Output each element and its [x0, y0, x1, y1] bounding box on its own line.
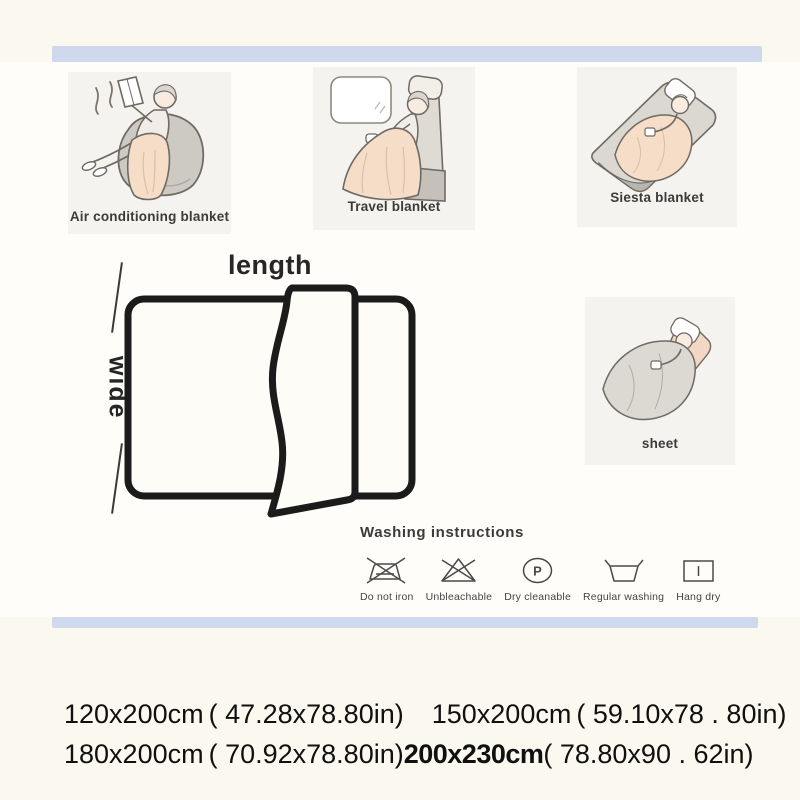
- sheet-cover: [603, 341, 695, 419]
- hand: [651, 361, 661, 369]
- size-option-150x200: 150x200cm( 59.10x78 . 80in): [432, 699, 787, 729]
- wash-item-regular-washing: Regular washing: [583, 553, 664, 603]
- sheet-illustration: [587, 303, 733, 435]
- scene-label: Siesta blanket: [577, 190, 737, 205]
- travel-blanket-illustration: [315, 71, 473, 203]
- blanket-rectangle: [128, 299, 412, 496]
- blanket: [128, 133, 170, 199]
- wash-label: Regular washing: [583, 591, 664, 603]
- size-line-2: 180x200cm( 70.92x78.80in)200x230cm( 78.8…: [64, 734, 800, 774]
- hang-dry-icon: [677, 553, 719, 588]
- wash-item-dry-cleanable: P Dry cleanable: [504, 553, 571, 603]
- do-not-iron-icon: [364, 553, 409, 588]
- hand: [645, 128, 655, 136]
- head: [672, 97, 689, 114]
- scene-label: Travel blanket: [313, 199, 475, 214]
- size-option-200x230-selected: 200x230cm( 78.80x90 . 62in): [404, 739, 754, 769]
- blanket-outline-illustration: [95, 252, 425, 522]
- size-line-1: 120x200cm( 47.28x78.80in)150x200cm( 59.1…: [64, 694, 800, 734]
- top-divider-bar: [52, 46, 762, 62]
- washing-instructions-section: Washing instructions Do not iron Unbleac…: [360, 524, 772, 603]
- regular-wash-icon: [601, 553, 647, 588]
- scene-label: Air conditioning blanket: [68, 209, 231, 224]
- wash-item-unbleachable: Unbleachable: [426, 553, 493, 603]
- wash-item-do-not-iron: Do not iron: [360, 553, 414, 603]
- air-conditioning-blanket-illustration: [70, 74, 228, 202]
- siesta-blanket-illustration: [579, 69, 735, 195]
- wash-label: Unbleachable: [426, 591, 493, 603]
- blanket: [343, 128, 421, 199]
- scene-travel-blanket: Travel blanket: [313, 67, 475, 230]
- cold-air-icon: [96, 82, 112, 114]
- wash-label: Do not iron: [360, 591, 414, 603]
- scene-label: sheet: [585, 436, 735, 451]
- dry-clean-icon: P: [515, 553, 560, 588]
- no-bleach-icon: [436, 553, 481, 588]
- blanket-fold: [271, 288, 355, 514]
- size-option-180x200: 180x200cm( 70.92x78.80in): [64, 739, 404, 769]
- scene-sheet: sheet: [585, 297, 735, 465]
- wash-item-hang-dry: Hang dry: [676, 553, 720, 603]
- svg-text:P: P: [533, 564, 542, 579]
- size-option-120x200: 120x200cm( 47.28x78.80in): [64, 699, 404, 729]
- scene-air-conditioning-blanket: Air conditioning blanket: [68, 72, 231, 234]
- wash-label: Dry cleanable: [504, 591, 571, 603]
- bottom-divider-bar: [52, 617, 758, 628]
- window: [331, 77, 391, 123]
- scene-siesta-blanket: Siesta blanket: [577, 67, 737, 227]
- washing-title: Washing instructions: [360, 524, 772, 541]
- washing-icons-row: Do not iron Unbleachable P Dry cleanable…: [360, 553, 772, 603]
- wash-label: Hang dry: [676, 591, 720, 603]
- size-options: 120x200cm( 47.28x78.80in)150x200cm( 59.1…: [0, 694, 800, 774]
